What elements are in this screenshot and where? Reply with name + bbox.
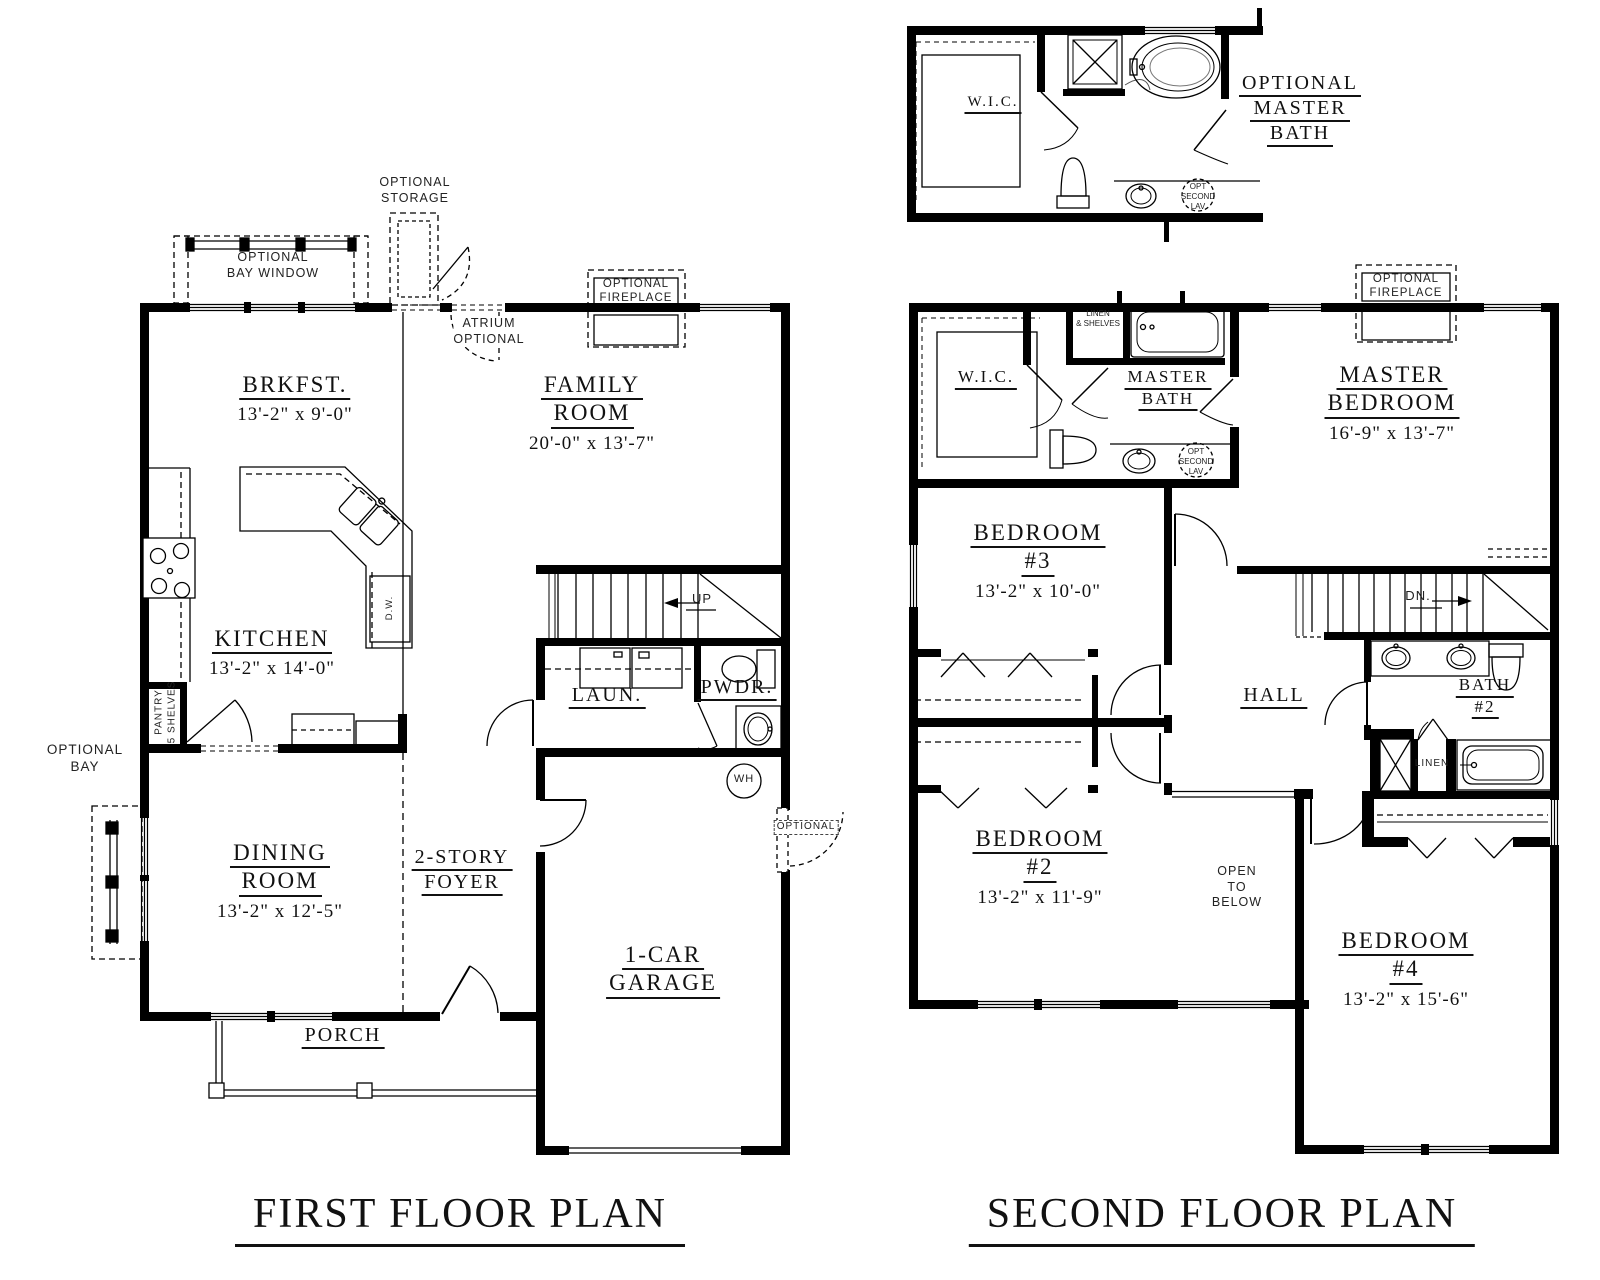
inset-wic-label: W.I.C. (964, 92, 1021, 114)
room-label-master-bath: MASTER BATH (1125, 368, 1212, 411)
room-label-dining: DINING ROOM 13'-2" x 12'-5" (217, 840, 343, 923)
optional-fireplace-label-second: OPTIONAL FIREPLACE (1370, 272, 1443, 301)
inset-tub-icon (1130, 36, 1220, 98)
master-bedroom-dims: 16'-9" x 13'-7" (1329, 419, 1455, 446)
porch-name: PORCH (302, 1024, 385, 1049)
bath2-sinks-icon (1371, 641, 1489, 676)
room-label-powder: PWDR. (698, 676, 777, 701)
laundry-name: LAUN. (569, 684, 646, 709)
master-bath-name-1: MASTER (1125, 368, 1212, 390)
optional-storage-label: OPTIONAL STORAGE (379, 175, 450, 206)
dining-name-2: ROOM (238, 868, 321, 896)
kitchen-name: KITCHEN (212, 626, 333, 654)
room-label-bedroom2: BEDROOM #2 13'-2" x 11'-9" (972, 826, 1107, 909)
bath2-name-1: BATH (1456, 676, 1514, 698)
room-label-laundry: LAUN. (569, 684, 646, 709)
first-floor-openings (140, 302, 790, 1155)
brkfst-name: BRKFST. (240, 372, 351, 400)
dishwasher-label: D.W. (384, 596, 396, 621)
garage-name-1: 1-CAR (622, 942, 704, 970)
bedroom2-dims: 13'-2" x 11'-9" (977, 883, 1102, 910)
optional-bay-window-label: OPTIONAL BAY WINDOW (227, 250, 319, 281)
inset-title-1: OPTIONAL (1239, 72, 1361, 97)
closet-bifold-doors (915, 653, 1085, 808)
bedroom3-dims: 13'-2" x 10'-0" (975, 577, 1101, 604)
wic-shelving (922, 318, 1040, 468)
inset-wic-name: W.I.C. (964, 94, 1021, 114)
stairs-dn-label: DN. (1405, 588, 1430, 604)
inset-title-3: BATH (1267, 122, 1333, 147)
room-label-brkfst: BRKFST. 13'-2" x 9'-0" (237, 372, 353, 427)
kitchen-dims: 13'-2" x 14'-0" (209, 654, 335, 681)
bedroom4-name-1: BEDROOM (1338, 928, 1473, 956)
first-floor-walls (140, 303, 790, 1155)
room-label-master-bedroom: MASTER BEDROOM 16'-9" x 13'-7" (1324, 362, 1459, 445)
inset-title-2: MASTER (1250, 97, 1349, 122)
foyer-name-2: FOYER (421, 871, 503, 896)
room-label-foyer: 2-STORY FOYER (412, 846, 513, 896)
stairs-first-floor (549, 574, 781, 638)
bedroom4-dims: 13'-2" x 15'-6" (1343, 985, 1469, 1012)
bedroom4-closet (1377, 815, 1548, 858)
room-label-wic: W.I.C. (955, 368, 1017, 390)
water-heater-label: WH (734, 773, 754, 787)
open-to-below-label: OPEN TO BELOW (1212, 864, 1262, 911)
powder-name: PWDR. (698, 676, 777, 701)
room-label-hall: HALL (1240, 684, 1307, 709)
atrium-optional-label: ATRIUM OPTIONAL (453, 316, 524, 347)
first-floor-plan-title: FIRST FLOOR PLAN (235, 1190, 685, 1247)
dining-name-1: DINING (230, 840, 330, 868)
room-label-garage: 1-CAR GARAGE (606, 942, 720, 999)
optional-storage-outline (390, 213, 470, 305)
brkfst-dims: 13'-2" x 9'-0" (237, 400, 353, 427)
optional-bay-label: OPTIONAL BAY (47, 742, 123, 776)
master-bath-toilet-icon (1050, 430, 1096, 468)
stove-icon (143, 538, 195, 598)
inset-title: OPTIONAL MASTER BATH (1239, 72, 1361, 147)
linen-label: LINEN (1415, 758, 1449, 771)
master-bedroom-name-2: BEDROOM (1324, 390, 1459, 418)
inset-wic-shelving (916, 42, 1035, 200)
pantry-label: PANTRY 5 SHELVES (154, 681, 179, 744)
master-bath-tub-icon (1131, 307, 1224, 357)
optional-door-label: OPTIONAL (774, 820, 839, 835)
washer-dryer-icons (545, 648, 694, 688)
second-floor-plan-title: SECOND FLOOR PLAN (969, 1190, 1475, 1247)
wic-name: W.I.C. (955, 368, 1017, 390)
powder-sink-icon (736, 706, 781, 752)
inset-toilet-icon (1057, 158, 1089, 208)
bedroom3-name-2: #3 (1021, 548, 1054, 576)
room-label-kitchen: KITCHEN 13'-2" x 14'-0" (209, 626, 335, 681)
master-bedroom-name-1: MASTER (1336, 362, 1447, 390)
bath2-name-2: #2 (1472, 698, 1499, 720)
room-label-bath2: BATH #2 (1456, 676, 1514, 719)
family-name-2: ROOM (550, 400, 633, 428)
bedroom2-name-2: #2 (1023, 854, 1056, 882)
family-dims: 20'-0" x 13'-7" (529, 429, 655, 456)
room-label-bedroom3: BEDROOM #3 13'-2" x 10'-0" (970, 520, 1105, 603)
room-label-family: FAMILY ROOM 20'-0" x 13'-7" (529, 372, 655, 455)
garage-name-2: GARAGE (606, 970, 720, 998)
bedroom3-name-1: BEDROOM (970, 520, 1105, 548)
master-bath-name-2: BATH (1139, 390, 1197, 412)
optional-fireplace-label-first: OPTIONAL FIREPLACE (600, 277, 673, 306)
floor-plan-sheet: BRKFST. 13'-2" x 9'-0" FAMILY ROOM 20'-0… (0, 0, 1600, 1280)
linen-shelves-label: LINEN & SHELVES (1076, 309, 1120, 329)
inset-opt-second-lav-label: OPT SECOND LAV (1181, 182, 1215, 212)
hall-name: HALL (1240, 684, 1307, 709)
room-label-porch: PORCH (302, 1024, 385, 1049)
optional-bay-outline (92, 806, 142, 959)
foyer-name-1: 2-STORY (412, 846, 513, 871)
stairs-up-label: UP (692, 591, 712, 607)
bath2-tub-icon (1457, 740, 1556, 790)
room-label-bedroom4: BEDROOM #4 13'-2" x 15'-6" (1338, 928, 1473, 1011)
family-name-1: FAMILY (541, 372, 643, 400)
dining-dims: 13'-2" x 12'-5" (217, 897, 343, 924)
bedroom4-name-2: #4 (1389, 956, 1422, 984)
opt-second-lav-label: OPT SECOND LAV (1179, 447, 1213, 477)
bedroom2-name-1: BEDROOM (972, 826, 1107, 854)
